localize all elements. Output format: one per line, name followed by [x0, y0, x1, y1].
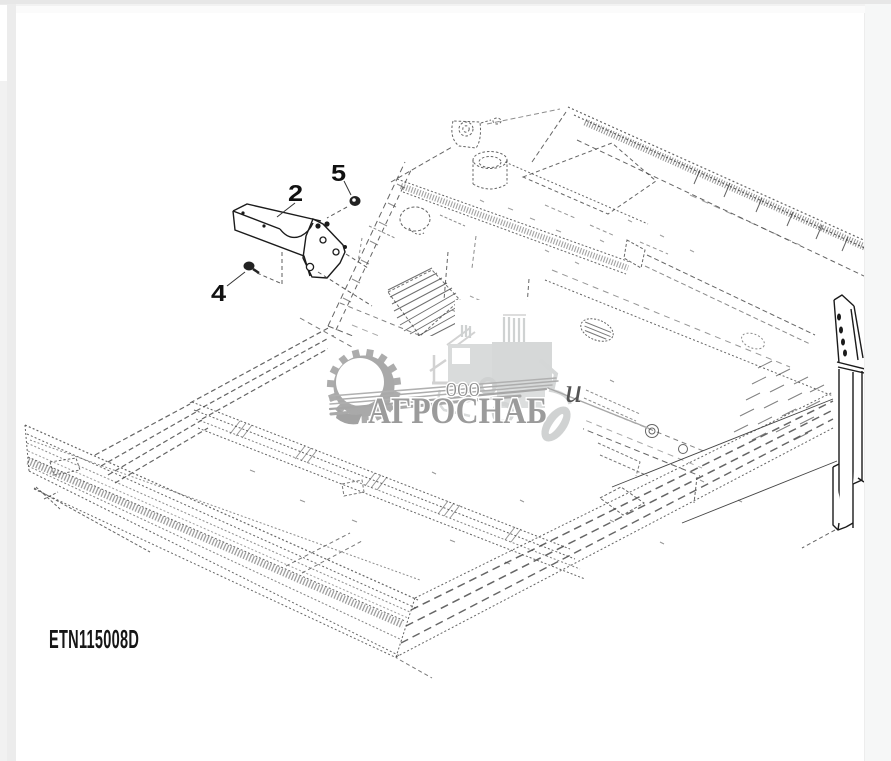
svg-text:АГРОСНАБ: АГРОСНАБ — [368, 391, 547, 432]
svg-text:ETN115008D: ETN115008D — [49, 626, 139, 654]
svg-text:5: 5 — [331, 161, 346, 187]
svg-text:2: 2 — [288, 181, 303, 207]
svg-text:u: u — [565, 373, 582, 410]
svg-text:4: 4 — [211, 281, 226, 307]
